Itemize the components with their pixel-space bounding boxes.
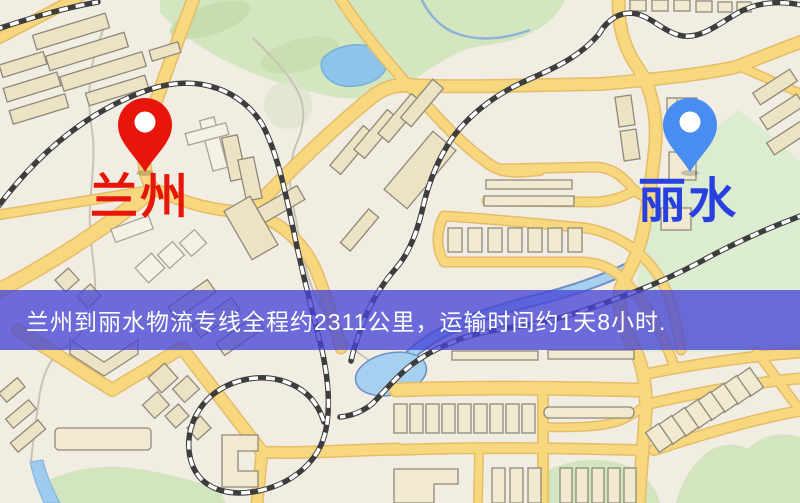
route-info-text: 兰州到丽水物流专线全程约2311公里，运输时间约1天8小时. [26,303,666,337]
map-canvas[interactable] [0,0,800,503]
origin-city-label: 兰州 [90,174,190,222]
route-info-banner: 兰州到丽水物流专线全程约2311公里，运输时间约1天8小时. [0,290,800,350]
map-screenshot: 兰州 丽水 兰州到丽水物流专线全程约2311公里，运输时间约1天8小时. [0,0,800,503]
origin-pin-icon[interactable] [118,98,172,172]
destination-city-label: 丽水 [638,178,738,226]
